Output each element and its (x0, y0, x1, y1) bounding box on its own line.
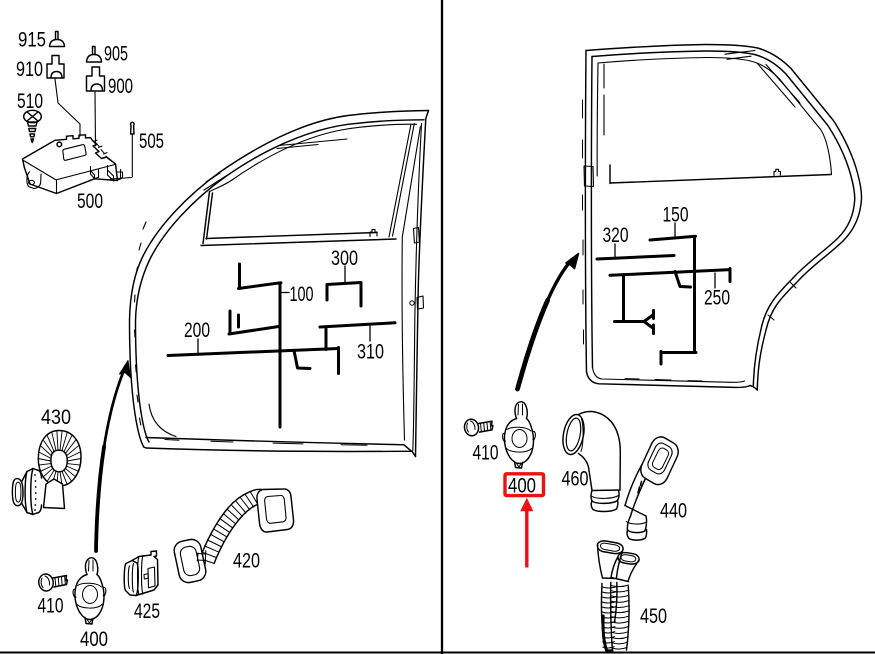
svg-text:910: 910 (16, 58, 43, 81)
svg-text:905: 905 (104, 43, 128, 66)
svg-text:425: 425 (134, 600, 160, 623)
svg-text:440: 440 (660, 500, 687, 523)
svg-text:410: 410 (38, 594, 64, 617)
svg-text:460: 460 (562, 468, 589, 491)
svg-text:320: 320 (603, 224, 629, 247)
svg-text:450: 450 (640, 605, 667, 628)
svg-text:400: 400 (80, 628, 108, 651)
svg-text:420: 420 (233, 549, 260, 572)
svg-text:200: 200 (184, 319, 210, 342)
svg-text:900: 900 (108, 75, 133, 98)
svg-text:310: 310 (357, 341, 384, 364)
svg-text:150: 150 (663, 204, 689, 227)
svg-text:510: 510 (17, 90, 43, 113)
svg-text:505: 505 (139, 130, 164, 153)
svg-text:300: 300 (331, 247, 358, 270)
svg-text:400: 400 (508, 475, 536, 498)
svg-text:915: 915 (18, 29, 46, 52)
svg-text:100: 100 (290, 283, 314, 306)
svg-text:430: 430 (41, 406, 71, 429)
svg-text:250: 250 (704, 286, 730, 309)
svg-text:410: 410 (473, 442, 499, 465)
svg-text:500: 500 (77, 190, 103, 213)
